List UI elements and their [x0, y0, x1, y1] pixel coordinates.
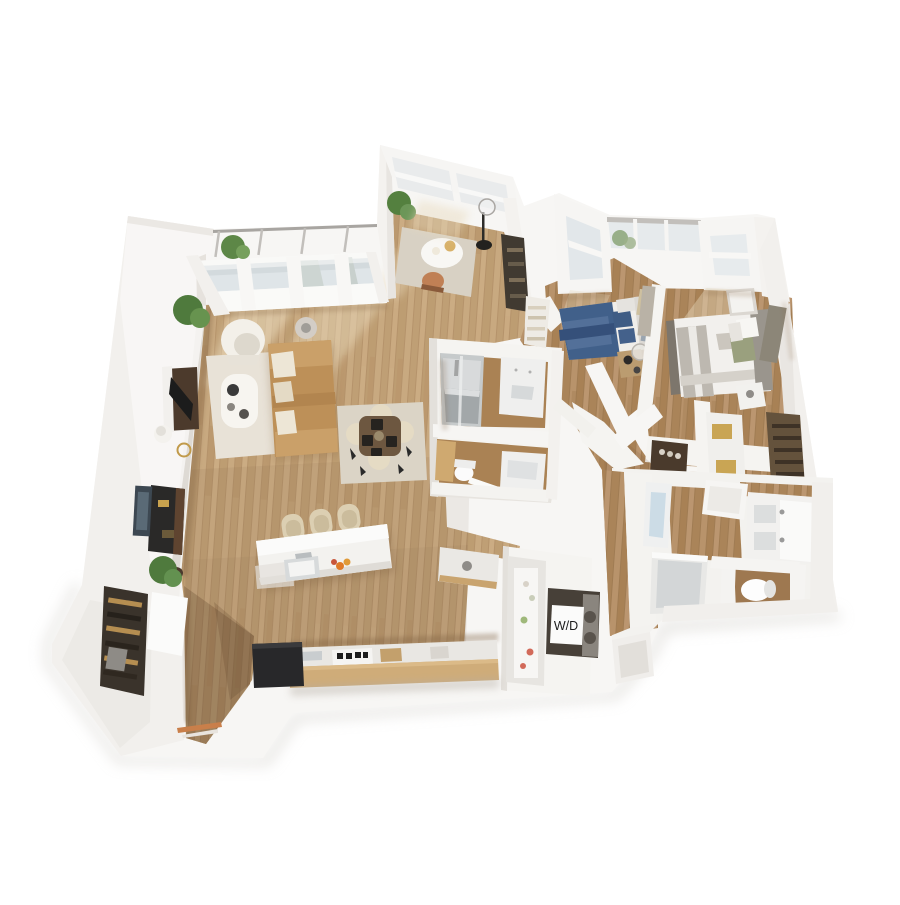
svg-text:W/D: W/D — [554, 619, 578, 633]
